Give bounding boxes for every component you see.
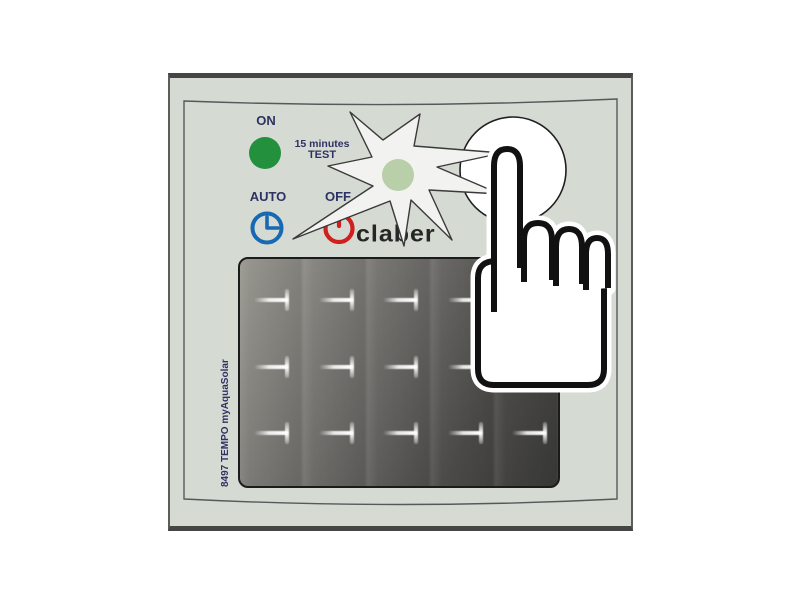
on-label: ON — [249, 113, 283, 128]
auto-label: AUTO — [245, 189, 291, 204]
clock-icon — [248, 208, 286, 246]
manual-illustration: ON 15 minutes TEST AUTO OFF claber 8497 … — [0, 0, 800, 600]
solar-cell-mark — [252, 422, 292, 444]
off-label: OFF — [318, 189, 358, 204]
solar-cell-mark — [317, 422, 357, 444]
solar-cell-mark — [446, 422, 486, 444]
solar-cell-mark — [381, 356, 421, 378]
solar-cell-mark — [317, 289, 357, 311]
on-led-button[interactable] — [249, 137, 281, 169]
solar-cell-mark — [252, 289, 292, 311]
model-label: 8497 TEMPO myAquaSolar — [220, 321, 231, 487]
solar-cell-mark — [252, 356, 292, 378]
solar-cell-mark — [510, 289, 550, 311]
test-duration-label: 15 minutes TEST — [284, 139, 360, 161]
test-text: TEST — [284, 150, 360, 161]
solar-panel — [238, 257, 560, 488]
solar-cell-mark — [317, 356, 357, 378]
power-icon — [319, 206, 359, 248]
solar-cell-mark — [510, 356, 550, 378]
solar-cell-mark — [381, 422, 421, 444]
solar-cell-mark — [381, 289, 421, 311]
solar-cell-mark — [446, 289, 486, 311]
solar-cell-mark — [446, 356, 486, 378]
solar-cell-mark — [510, 422, 550, 444]
brand-logo: claber — [356, 221, 436, 248]
